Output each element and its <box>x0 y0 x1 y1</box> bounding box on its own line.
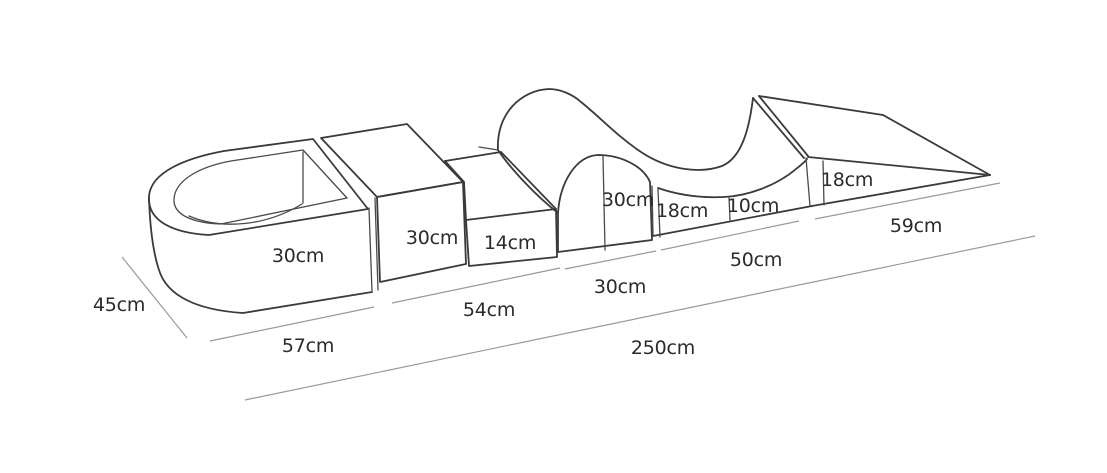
arch-back-dome <box>498 89 753 170</box>
ball-pit-cube-seam-line-1 <box>369 208 372 292</box>
label-wave-length: 50cm <box>730 249 782 271</box>
ramp-wave-seam-line-1 <box>753 98 804 158</box>
label-wave-left-height: 18cm <box>656 200 708 222</box>
ramp-back-top-edge <box>759 96 883 115</box>
ramp-left-edge-line-1 <box>806 158 810 206</box>
label-cube-height: 30cm <box>406 227 458 249</box>
ball-pit-floor-edge <box>189 204 302 224</box>
label-ballpit-length: 57cm <box>282 335 334 357</box>
label-step-height: 14cm <box>484 232 536 254</box>
label-depth: 45cm <box>93 294 145 316</box>
label-cube-step-length: 54cm <box>463 299 515 321</box>
cube-block <box>321 124 466 282</box>
label-ramp-height: 18cm <box>821 169 873 191</box>
dim-line-arch-30 <box>565 251 656 269</box>
label-ballpit-height: 30cm <box>272 245 324 267</box>
piece-labels: 30cm 30cm 14cm 30cm 18cm 10cm 18cm <box>272 169 873 267</box>
step-right-top-edge <box>501 152 556 209</box>
ball-pit-inner-rim <box>174 150 347 224</box>
ball-pit <box>149 139 378 313</box>
label-total-length: 250cm <box>631 337 695 359</box>
wave-front-top-curve <box>658 159 807 197</box>
step-back-edge <box>445 152 501 161</box>
label-arch-length: 30cm <box>594 276 646 298</box>
ramp-wave-seam-line-2 <box>759 96 808 156</box>
dim-line-total-250 <box>245 236 1035 400</box>
diagram-svg: 30cm 30cm 14cm 30cm 18cm 10cm 18cm 45cm … <box>0 0 1107 473</box>
dim-line-wave-50 <box>661 221 799 250</box>
dim-line-cube-step-54 <box>392 268 560 303</box>
label-arch-height: 30cm <box>602 189 654 211</box>
step-cube-junction-edge <box>445 161 464 182</box>
label-ramp-length: 59cm <box>890 215 942 237</box>
soft-play-dimension-diagram: 30cm 30cm 14cm 30cm 18cm 10cm 18cm 45cm … <box>0 0 1107 473</box>
arch-step-hidden-edge <box>479 147 498 150</box>
label-wave-trough-height: 10cm <box>727 195 779 217</box>
